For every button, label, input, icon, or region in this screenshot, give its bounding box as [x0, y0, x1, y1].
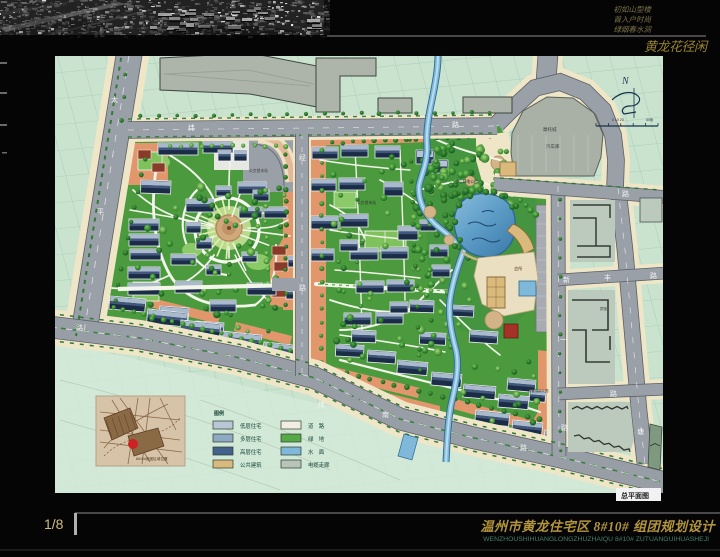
- svg-text:初如山型楼: 初如山型楼: [614, 5, 653, 14]
- svg-text:低层住宅: 低层住宅: [240, 422, 262, 430]
- svg-text:公交首末站: 公交首末站: [249, 168, 268, 173]
- svg-text:公交首末站: 公交首末站: [357, 200, 376, 205]
- svg-text:路: 路: [76, 323, 83, 332]
- svg-text:图例: 图例: [214, 410, 224, 417]
- svg-text:会所: 会所: [514, 265, 522, 272]
- svg-text:多层住宅: 多层住宅: [240, 435, 262, 443]
- svg-text:汽车库: 汽车库: [546, 143, 560, 150]
- svg-text:平: 平: [97, 208, 104, 216]
- svg-text:0 10 20: 0 10 20: [612, 118, 624, 122]
- svg-text:首入户时尚: 首入户时尚: [614, 15, 653, 24]
- svg-text:中心绿地公园: 中心绿地公园: [455, 179, 478, 184]
- svg-text:黄龙花径闲: 黄龙花径闲: [644, 39, 709, 54]
- svg-text:南: 南: [382, 410, 389, 419]
- svg-text:公共建筑: 公共建筑: [240, 461, 262, 469]
- svg-text:50米: 50米: [646, 117, 654, 122]
- svg-text:经: 经: [299, 153, 306, 162]
- svg-text:塘: 塘: [637, 427, 644, 436]
- svg-text:路: 路: [299, 283, 306, 292]
- svg-text:太: 太: [111, 95, 118, 104]
- svg-text:摩托城: 摩托城: [543, 126, 557, 133]
- svg-text:路: 路: [520, 443, 527, 452]
- svg-text:新: 新: [563, 275, 570, 284]
- svg-text:丰: 丰: [604, 273, 611, 282]
- svg-text:路: 路: [610, 389, 617, 398]
- svg-text:路: 路: [452, 120, 459, 129]
- svg-text:路: 路: [622, 189, 629, 198]
- svg-text:N: N: [621, 76, 630, 87]
- svg-text:一: 一: [560, 337, 567, 344]
- svg-text:绿 地: 绿 地: [308, 435, 325, 443]
- svg-text:物管及幼儿园: 物管及幼儿园: [528, 388, 549, 393]
- svg-text:路: 路: [650, 271, 657, 280]
- svg-text:路: 路: [561, 423, 568, 432]
- svg-text:1/8: 1/8: [44, 516, 64, 532]
- svg-text:温州市黄龙住宅区 8#10# 组团规划设计: 温州市黄龙住宅区 8#10# 组团规划设计: [480, 519, 716, 534]
- svg-text:宾馆: 宾馆: [600, 306, 607, 311]
- svg-text:高层住宅: 高层住宅: [240, 448, 262, 456]
- svg-text:道 路: 道 路: [308, 422, 325, 430]
- svg-text:纬: 纬: [188, 123, 195, 132]
- svg-text:纬: 纬: [318, 400, 325, 409]
- svg-text:水 面: 水 面: [308, 448, 325, 456]
- svg-text:WENZHOUSHIHUANGLONGZHUZHAIQU 8: WENZHOUSHIHUANGLONGZHUZHAIQU 8#10# ZUTUA…: [483, 536, 709, 543]
- svg-text:总平面图: 总平面图: [621, 491, 649, 500]
- svg-text:绿烟春水涧: 绿烟春水涧: [614, 25, 653, 34]
- svg-text:8#10#组团区域位置: 8#10#组团区域位置: [136, 456, 168, 461]
- svg-text:电缆走廊: 电缆走廊: [308, 461, 330, 469]
